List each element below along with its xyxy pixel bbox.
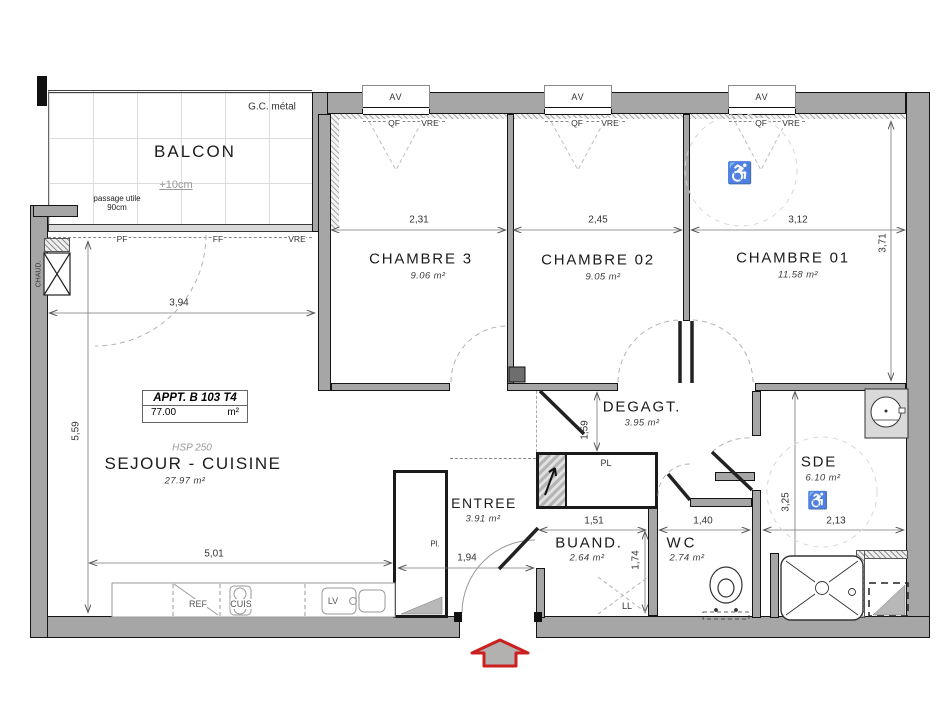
entry-closet <box>393 470 448 618</box>
opening-label-ff: FF <box>212 234 224 244</box>
closet-label-pl-small: Pl. <box>430 540 439 549</box>
wall <box>507 383 618 391</box>
wall <box>611 92 729 114</box>
window-label: AV <box>571 92 584 102</box>
wall <box>536 568 545 618</box>
opening-label-pf: PF <box>116 234 129 244</box>
dim-sde-height: 3,25 <box>781 492 792 511</box>
room-area-sde: 6.10 m² <box>805 473 840 484</box>
room-area-wc: 2.74 m² <box>669 553 704 564</box>
window-av-box: AV <box>362 85 430 109</box>
dim-buand-width: 1,51 <box>584 516 603 527</box>
room-area-chambre3: 9.06 m² <box>410 271 445 282</box>
shower <box>781 556 863 620</box>
wheelchair-icon: ♿ <box>727 162 753 186</box>
room-name-chambre3: CHAMBRE 3 <box>369 251 473 268</box>
room-name-sejour: SEJOUR - CUISINE <box>104 454 281 474</box>
room-name-wc: WC <box>667 535 698 552</box>
dim-kitchen-width: 5,01 <box>204 549 223 560</box>
hall-storage-block <box>536 452 658 509</box>
wall <box>683 114 690 321</box>
front-door-arc <box>462 540 535 613</box>
wheelchair-icon: ♿ <box>807 491 828 511</box>
opening-label-qf: QF <box>387 118 401 128</box>
window-frame <box>729 107 795 115</box>
dim-chambre02-width: 2,45 <box>588 215 607 226</box>
entrance-arrow-icon <box>472 640 528 666</box>
kitchen-counter <box>112 583 395 617</box>
room-area-chambre02: 9.05 m² <box>585 272 620 283</box>
ceiling-height-note: HSP 250 <box>172 443 212 454</box>
apartment-id-box: APPT. B 103 T4 77.00 m² <box>142 390 248 423</box>
apartment-area-unit: m² <box>227 407 239 418</box>
room-separator-dash <box>536 391 537 452</box>
window-label: AV <box>389 92 402 102</box>
room-area-entree: 3.91 m² <box>465 514 500 525</box>
toilet <box>703 567 749 619</box>
wall <box>770 553 779 618</box>
washbasin <box>865 389 908 438</box>
bay-window-dash <box>48 237 312 238</box>
wall <box>715 472 755 481</box>
wall <box>331 383 450 391</box>
passage-note: passage utile 90cm <box>90 194 144 212</box>
room-name-buand: BUAND. <box>555 535 622 552</box>
apartment-id: APPT. B 103 T4 <box>143 391 247 406</box>
cooktop-label: CUIS <box>230 599 252 609</box>
room-name-balcon: BALCON <box>154 142 236 162</box>
opening-label-qf: QF <box>570 118 584 128</box>
room-name-degagt: DEGAGT. <box>603 399 681 416</box>
room-area-degagt: 3.95 m² <box>624 418 659 429</box>
wall <box>507 114 514 391</box>
room-separator-dash <box>450 458 536 459</box>
balcony-level-note: +10cm <box>159 179 192 191</box>
wall <box>690 498 752 507</box>
dim-sde-width: 2,13 <box>826 516 845 527</box>
opening-label-vre: VRE <box>420 118 439 128</box>
opening-label-vre: VRE <box>781 118 800 128</box>
washer-label-ll: LL <box>622 601 632 611</box>
dim-chambre3-width: 2,31 <box>409 215 428 226</box>
closet-label-pl: PL <box>600 458 611 468</box>
wall <box>30 616 460 638</box>
dishwasher-label: LV <box>328 596 338 606</box>
room-name-chambre02: CHAMBRE 02 <box>541 252 655 269</box>
room-area-sejour: 27.97 m² <box>165 476 206 487</box>
room-name-entree: ENTREE <box>451 495 517 511</box>
wall <box>752 490 761 618</box>
boiler-wall-hatch <box>44 238 70 252</box>
dim-degagt-height: 1,59 <box>580 420 591 439</box>
dim-entree-width: 1,94 <box>457 553 476 564</box>
window-frame <box>545 107 611 115</box>
window-av-box: AV <box>728 85 796 109</box>
wall <box>795 92 906 114</box>
wall <box>318 114 331 391</box>
opening-label-vre: VRE <box>287 234 306 244</box>
dim-chambre01-height: 3,71 <box>878 233 889 252</box>
room-name-chambre01: CHAMBRE 01 <box>736 250 850 267</box>
wall <box>752 391 761 436</box>
dim-chambre01-width: 3,12 <box>788 215 807 226</box>
opening-label-vre: VRE <box>600 118 619 128</box>
room-area-chambre01: 11.58 m² <box>778 270 818 281</box>
fridge-label: REF <box>189 599 207 609</box>
dim-buand-height: 1,74 <box>631 550 642 569</box>
wall <box>906 92 930 638</box>
shaft-wall-hatch <box>856 550 865 618</box>
guardrail-note: G.C. métal <box>248 102 296 113</box>
opening-label-qf: QF <box>754 118 768 128</box>
sliding-bay-window <box>48 224 314 232</box>
window-av-box: AV <box>544 85 612 109</box>
apartment-area-value: 77.00 <box>151 407 176 418</box>
window-frame <box>363 107 429 115</box>
dim-sejour-height: 5,59 <box>71 421 82 440</box>
room-name-sde: SDE <box>801 454 837 471</box>
dim-sejour-width: 3,94 <box>169 298 188 309</box>
window-label: AV <box>755 92 768 102</box>
wall <box>429 92 545 114</box>
wall <box>536 616 930 638</box>
wall <box>33 205 78 217</box>
ventilation-duct <box>539 455 567 506</box>
wall <box>648 502 658 616</box>
dim-wc-width: 1,40 <box>693 516 712 527</box>
boiler-label: CHAUD. <box>36 261 43 288</box>
wall <box>755 383 906 391</box>
floor-plan: AV AV AV <box>0 0 940 705</box>
technical-shaft <box>869 583 908 616</box>
balcony-post <box>37 76 47 106</box>
room-area-buand: 2.64 m² <box>569 553 604 564</box>
